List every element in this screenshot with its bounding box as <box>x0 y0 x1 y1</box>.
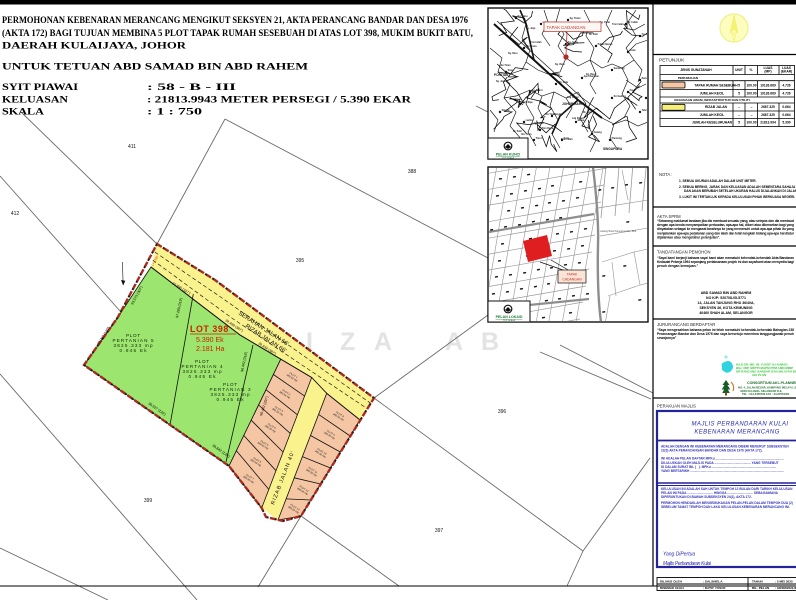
svg-text:TAPAK: TAPAK <box>567 273 578 277</box>
svg-text:Kulai: Kulai <box>630 49 636 52</box>
svg-text:(EKAR): (EKAR) <box>781 70 793 74</box>
svg-text:TAPAK RUMAH SESEBUAH: TAPAK RUMAH SESEBUAH <box>694 83 738 87</box>
svg-text:5.390 Ek: 5.390 Ek <box>196 337 224 344</box>
svg-text:Snai: Snai <box>508 69 513 72</box>
svg-text:PERUMAHAN: PERUMAHAN <box>678 76 699 80</box>
svg-text:: 5 MEI 2025: : 5 MEI 2025 <box>775 579 793 583</box>
svg-text:Kg. Sana: Kg. Sana <box>568 41 579 44</box>
svg-text:Z: Z <box>340 328 355 356</box>
svg-text:A: A <box>445 328 463 356</box>
svg-text:–: – <box>751 113 753 117</box>
svg-text:TAPAK CADANGAN: TAPAK CADANGAN <box>547 25 586 30</box>
svg-text:22(3) AKTA PERANCANGAN BANDAR: 22(3) AKTA PERANCANGAN BANDAR DAN DESA 1… <box>661 449 763 453</box>
svg-text:0.664: 0.664 <box>782 113 790 117</box>
svg-text:19126.669: 19126.669 <box>760 91 776 95</box>
svg-text:Larkin: Larkin <box>526 119 534 122</box>
svg-text:Perancangan Bandar dan Desa 19: Perancangan Bandar dan Desa 1976 dan say… <box>657 332 794 336</box>
svg-text:Kg. Baru: Kg. Baru <box>555 64 565 66</box>
svg-text:2687.325: 2687.325 <box>761 113 775 117</box>
svg-text:: 58 - B - III: : 58 - B - III <box>147 82 236 93</box>
svg-text:PELAN KUNCI: PELAN KUNCI <box>496 153 521 157</box>
svg-text:CADANGAN: CADANGAN <box>562 278 582 282</box>
svg-text:UNIT: UNIT <box>735 68 743 72</box>
svg-text:YANG BERTARIKH ...............: YANG BERTARIKH .........................… <box>661 469 784 473</box>
svg-text:sewajarnya”: sewajarnya” <box>657 336 677 340</box>
svg-text:Kg. Baru: Kg. Baru <box>586 74 596 76</box>
svg-text:PERAKUAN MAJLIS: PERAKUAN MAJLIS <box>657 404 696 409</box>
svg-text:SEKSYEN 36, KOTA KEMUNING: SEKSYEN 36, KOTA KEMUNING <box>699 306 752 310</box>
svg-text:100.00: 100.00 <box>746 83 756 87</box>
svg-text:Majlis Perbandaran Kulai: Majlis Perbandaran Kulai <box>663 561 712 567</box>
svg-text:2687.325: 2687.325 <box>761 105 775 109</box>
svg-text:40460 SHAH ALAM, SELANGOR: 40460 SHAH ALAM, SELANGOR <box>699 311 753 315</box>
svg-text:Pasir: Pasir <box>630 89 636 92</box>
svg-text:DAN AKAN BERUBAH SETELAH UKURA: DAN AKAN BERUBAH SETELAH UKURAN HALUS DI… <box>684 189 796 193</box>
svg-text:MAJLIS PERBANDARAN KULAI: MAJLIS PERBANDARAN KULAI <box>692 422 789 428</box>
svg-text:JURURANCANG BERDAFTAR: JURURANCANG BERDAFTAR <box>657 322 715 327</box>
svg-text:Bt. Putri: Bt. Putri <box>513 130 522 133</box>
svg-text:KEGUNAAN AWAM, INFRASTRUKTUR D: KEGUNAAN AWAM, INFRASTRUKTUR DAN UTILITI <box>674 98 749 102</box>
svg-text:4.726: 4.726 <box>782 91 790 95</box>
svg-text:B: B <box>481 328 499 356</box>
svg-text:dijalankan atau mengetahui pel: dijalankan atau mengetahui pelanjutan”. <box>657 235 720 239</box>
svg-text:TDP SKALA: TDP SKALA <box>502 157 515 160</box>
svg-text:PERMOHONAN KEBENARAN MERANCANG: PERMOHONAN KEBENARAN MERANCANG MENGIKUT … <box>2 15 468 26</box>
svg-text:(AKTA 172) BAGI TUJUAN MEMBINA: (AKTA 172) BAGI TUJUAN MEMBINA 5 PLOT TA… <box>2 28 473 39</box>
svg-text:NO K/P: 520708-05-5771: NO K/P: 520708-05-5771 <box>706 296 746 300</box>
svg-text:Kg. Baru: Kg. Baru <box>508 53 518 55</box>
svg-text:KEBENARAN MERANCANG: KEBENARAN MERANCANG <box>694 430 779 436</box>
svg-text:Ulu Tiram: Ulu Tiram <box>545 114 556 116</box>
svg-text:AKI PLAN: AKI PLAN <box>752 373 766 377</box>
svg-text:411: 411 <box>128 144 136 150</box>
svg-text:Tmn Indah: Tmn Indah <box>530 42 542 44</box>
svg-text:Gelang: Gelang <box>594 131 603 134</box>
svg-text:: DATO’ YUSOF: : DATO’ YUSOF <box>703 586 726 590</box>
svg-text:Tmn U: Tmn U <box>536 137 544 140</box>
svg-text:LOT 398: LOT 398 <box>190 324 229 334</box>
svg-text:Bt. Putri: Bt. Putri <box>583 111 592 114</box>
svg-text:JENIS GUNATANAH: JENIS GUNATANAH <box>680 68 712 72</box>
svg-text:JUMLAH KECIL: JUMLAH KECIL <box>700 113 725 117</box>
svg-text:DISEMAK OLEH: DISEMAK OLEH <box>660 586 684 590</box>
svg-text:KELUASAN: KELUASAN <box>2 95 68 106</box>
svg-text:JOHOR BAHRU: JOHOR BAHRU <box>562 102 586 106</box>
svg-text:Skudai: Skudai <box>502 109 510 112</box>
svg-text:A: A <box>374 328 392 356</box>
svg-text:399: 399 <box>144 498 153 504</box>
svg-text:395: 395 <box>296 258 305 264</box>
svg-text:JUMLAH KECIL: JUMLAH KECIL <box>700 91 725 95</box>
svg-text:TEL : 013-3456789 FAX : 03-8: TEL : 013-3456789 FAX : 03-87654321 <box>742 392 790 396</box>
svg-text:Sg. Tiram: Sg. Tiram <box>570 17 581 20</box>
svg-text:100.00: 100.00 <box>746 121 756 125</box>
svg-text:0.664: 0.664 <box>782 105 790 109</box>
svg-text:SINGAPURA: SINGAPURA <box>603 147 623 151</box>
svg-text:Ldg Papan: Ldg Papan <box>572 118 584 120</box>
svg-text:–: – <box>751 105 753 109</box>
svg-text:396: 396 <box>498 409 507 415</box>
svg-text:Ulu Tiram: Ulu Tiram <box>500 65 511 67</box>
svg-text:SYIT PIAWAI: SYIT PIAWAI <box>2 82 78 93</box>
svg-text:388: 388 <box>408 169 417 175</box>
svg-text:14, JALAN TANJUNG RHU 36/40A,: 14, JALAN TANJUNG RHU 36/40A, <box>698 301 755 305</box>
svg-text:SKALA: SKALA <box>2 107 44 118</box>
svg-text:5: 5 <box>738 91 740 95</box>
svg-text:Sg. Jaya: Sg. Jaya <box>496 81 506 83</box>
svg-text:Ulu Tiram: Ulu Tiram <box>526 45 537 48</box>
svg-text:5.390: 5.390 <box>782 121 790 125</box>
svg-text:penuh dengan kemajuan.”: penuh dengan kemajuan.” <box>657 264 699 268</box>
svg-text:Ladang Bukit Panorama Sdn. Bhd: Ladang Bukit Panorama Sdn. Bhd. <box>600 230 637 233</box>
svg-text:Kg. Baru: Kg. Baru <box>518 15 529 18</box>
svg-text:ABD SAMAD BIN ABD RAHEM: ABD SAMAD BIN ABD RAHEM <box>701 291 752 295</box>
svg-text:TAHUN: TAHUN <box>752 579 763 583</box>
svg-text:21813.994: 21813.994 <box>760 121 776 125</box>
svg-text:CONSORTIUM AKI–PLANNERS: CONSORTIUM AKI–PLANNERS <box>747 381 796 385</box>
svg-text:DAERAH KULAIJAYA, JOHOR: DAERAH KULAIJAYA, JOHOR <box>2 40 187 51</box>
svg-text:Ldg Papan: Ldg Papan <box>567 97 579 99</box>
svg-text:DIPERUNTUKAN DI BAWAH SUBSEKSY: DIPERUNTUKAN DI BAWAH SUBSEKSYEN 24(1), … <box>661 495 752 499</box>
svg-text:Sg. Jaya: Sg. Jaya <box>526 28 536 30</box>
svg-text:%: % <box>750 68 753 72</box>
svg-text:Pekan Nanas: Pekan Nanas <box>598 43 614 46</box>
svg-text:Bt. Putri: Bt. Putri <box>589 33 598 36</box>
svg-text:DILUKIS OLEH: DILUKIS OLEH <box>660 579 683 583</box>
svg-text:Kg. Murni: Kg. Murni <box>532 89 543 92</box>
svg-text:397: 397 <box>435 528 444 534</box>
svg-text:UNTUK TETUAN ABD SAMAD BIN ABD: UNTUK TETUAN ABD SAMAD BIN ABD RAHEM <box>2 62 308 73</box>
svg-text:Sri Gading: Sri Gading <box>614 95 627 98</box>
svg-text:: 1 : 750: : 1 : 750 <box>147 107 202 118</box>
svg-text:3. LUKIT INI TERTAKLUK KEPADA: 3. LUKIT INI TERTAKLUK KEPADA KELULUSAN … <box>679 195 795 199</box>
svg-text:5: 5 <box>738 121 740 125</box>
svg-text:412: 412 <box>11 211 20 217</box>
svg-text:: AKSM/2021/38: : AKSM/2021/38 <box>775 586 796 590</box>
svg-text:Ulu Tiram: Ulu Tiram <box>521 134 532 136</box>
svg-text:4.726: 4.726 <box>782 83 790 87</box>
svg-text:: SALSHIELA: : SALSHIELA <box>703 579 723 583</box>
svg-text:PETUNJUK: PETUNJUK <box>659 58 685 64</box>
svg-text:TDP SKALA: TDP SKALA <box>503 319 516 322</box>
svg-text:: 21813.9943 METER PERSEGI / 5: : 21813.9943 METER PERSEGI / 5.390 EKAR <box>147 95 412 106</box>
svg-text:Plentong: Plentong <box>612 137 623 140</box>
svg-text:–: – <box>738 105 740 109</box>
svg-text:Tmn Daya: Tmn Daya <box>542 127 554 130</box>
svg-text:SEBELUM TAMAT TEMPOH DAN LAKU: SEBELUM TAMAT TEMPOH DAN LAKU KELULUSAN … <box>661 505 790 509</box>
svg-text:2.181 Ha: 2.181 Ha <box>196 346 225 353</box>
svg-text:19126.669: 19126.669 <box>760 83 776 87</box>
svg-text:Tmn Indah: Tmn Indah <box>561 139 573 141</box>
svg-text:Yang DiPertua: Yang DiPertua <box>663 552 695 558</box>
svg-text:INI ADALAH PELAN DAFTAR MPKu .: INI ADALAH PELAN DAFTAR MPKu ...........… <box>661 457 784 461</box>
svg-text:Tmn Indah: Tmn Indah <box>612 24 624 26</box>
svg-text:Parit Raja: Parit Raja <box>522 101 534 104</box>
svg-text:NOTA :: NOTA : <box>659 172 672 177</box>
svg-text:PONTIAN: PONTIAN <box>494 73 509 77</box>
svg-text:PELAN LOKASI: PELAN LOKASI <box>496 315 523 319</box>
svg-text:5: 5 <box>738 83 740 87</box>
svg-text:Bkt. Batu: Bkt. Batu <box>558 81 569 84</box>
svg-text:TANDATANGAN PEMOHON: TANDATANGAN PEMOHON <box>657 250 711 255</box>
svg-text:JUMLAH KESELURUHAN: JUMLAH KESELURUHAN <box>692 121 733 125</box>
svg-text:Senibong: Senibong <box>614 67 625 70</box>
svg-text:Bt. Indah: Bt. Indah <box>628 21 639 24</box>
svg-text:–: – <box>738 113 740 117</box>
svg-text:BIL. PELAN: BIL. PELAN <box>752 586 770 590</box>
svg-text:1. SEMUA UKURAN ADALAH DALAM: 1. SEMUA UKURAN ADALAH DALAM UNIT METER. <box>679 179 757 183</box>
svg-text:(MP): (MP) <box>764 70 771 74</box>
svg-text:RIZAB JALAN: RIZAB JALAN <box>705 105 728 109</box>
svg-text:100.00: 100.00 <box>746 91 756 95</box>
svg-text:Ldg Papan: Ldg Papan <box>532 123 544 125</box>
